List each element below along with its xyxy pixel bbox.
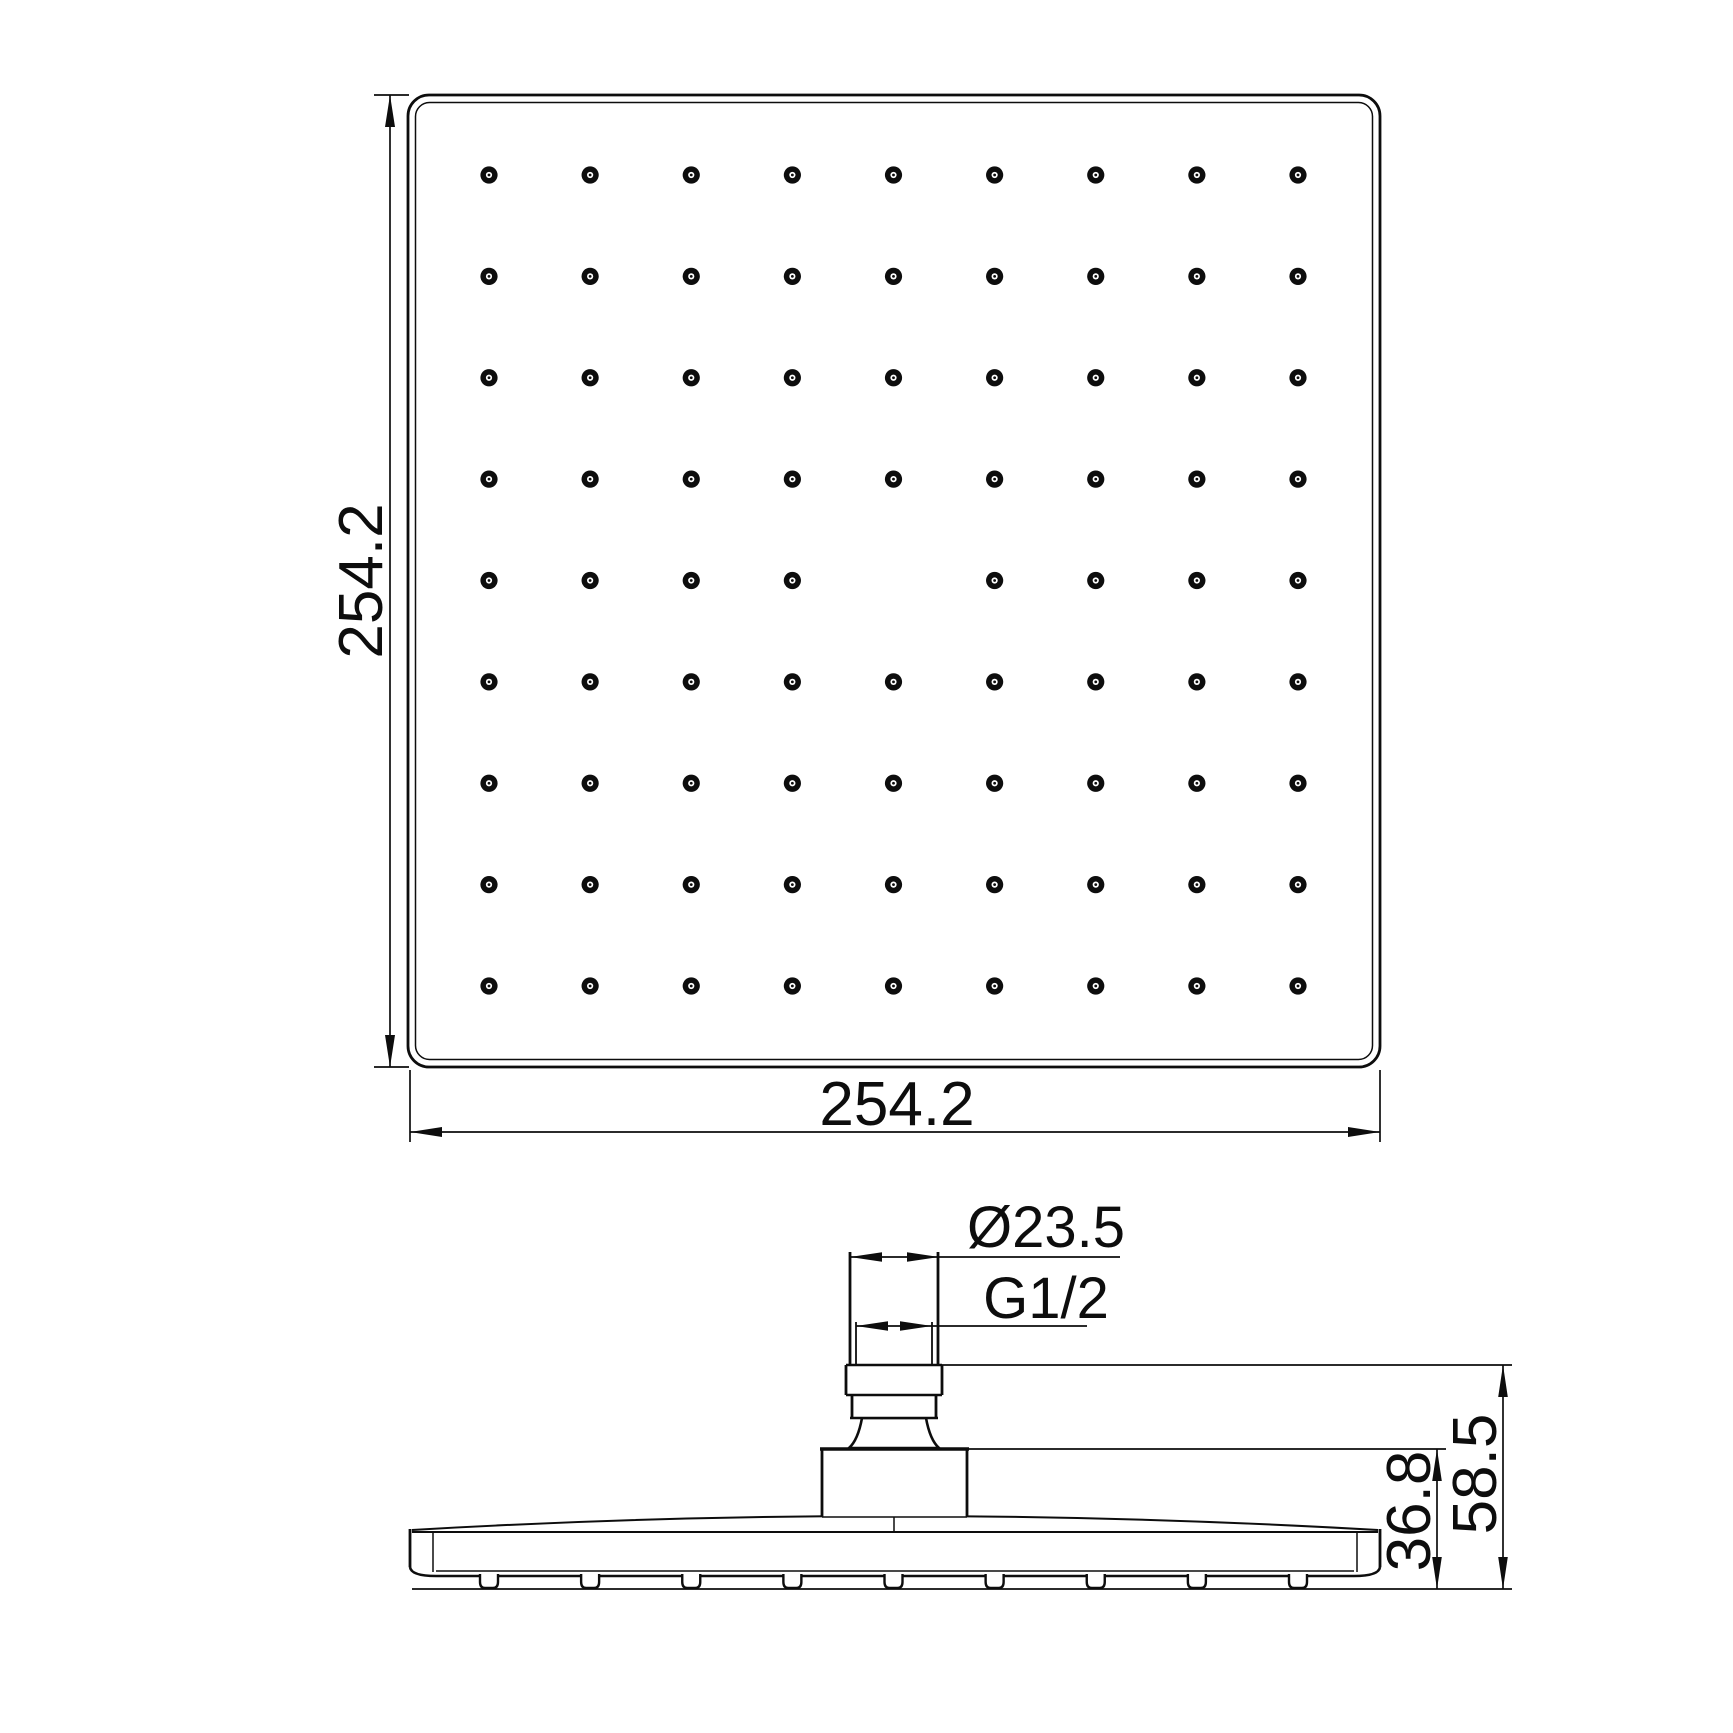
- nozzle: [986, 572, 1003, 589]
- nozzle: [1087, 268, 1104, 285]
- dim-label-connector-diameter: Ø23.5: [967, 1195, 1125, 1260]
- nozzle: [480, 572, 497, 589]
- side-head-body: [410, 1516, 1380, 1576]
- nut-fill: [846, 1365, 942, 1395]
- nozzle: [683, 268, 700, 285]
- nozzle: [885, 673, 902, 690]
- face-nub: [1087, 1574, 1105, 1588]
- nozzle: [1188, 369, 1205, 386]
- nozzle: [784, 876, 801, 893]
- shower-head-drawing: 254.2 254.2: [0, 0, 1733, 1733]
- nozzle: [683, 471, 700, 488]
- nozzle: [784, 166, 801, 183]
- arrowhead-right: [1348, 1127, 1380, 1137]
- nozzle: [986, 876, 1003, 893]
- nozzle: [784, 471, 801, 488]
- face-nub: [581, 1574, 599, 1588]
- nozzle: [480, 775, 497, 792]
- nozzle: [480, 876, 497, 893]
- nozzle: [784, 673, 801, 690]
- nozzle: [885, 876, 902, 893]
- nozzle: [480, 471, 497, 488]
- nozzle: [1188, 268, 1205, 285]
- nozzle: [1188, 166, 1205, 183]
- nozzle: [885, 471, 902, 488]
- nozzle: [885, 268, 902, 285]
- nozzle: [1188, 977, 1205, 994]
- arrowhead-up: [1498, 1365, 1508, 1397]
- face-nub: [1188, 1574, 1206, 1588]
- swivel-cone: [849, 1418, 939, 1448]
- nozzle: [582, 673, 599, 690]
- connector-collar: [850, 1395, 938, 1418]
- nozzle: [986, 977, 1003, 994]
- nozzle: [1087, 166, 1104, 183]
- escutcheon: [820, 1449, 969, 1517]
- connector-nut: [846, 1365, 942, 1395]
- nozzle: [1087, 369, 1104, 386]
- arrowhead-down: [385, 1035, 395, 1067]
- nozzle: [683, 876, 700, 893]
- nozzle: [784, 775, 801, 792]
- nozzle: [582, 775, 599, 792]
- face-nub: [783, 1574, 801, 1588]
- arrowhead-down: [1498, 1557, 1508, 1589]
- arrowhead-left: [410, 1127, 442, 1137]
- nozzle: [885, 166, 902, 183]
- dim-label-width: 254.2: [819, 1070, 974, 1139]
- nozzle: [1188, 876, 1205, 893]
- nozzle: [1087, 572, 1104, 589]
- nozzle: [480, 268, 497, 285]
- nozzle: [1289, 775, 1306, 792]
- nozzle: [582, 369, 599, 386]
- technical-drawing-page: 254.2 254.2: [0, 0, 1733, 1733]
- arrowhead-left: [850, 1252, 882, 1262]
- nozzle: [582, 166, 599, 183]
- nozzle: [480, 166, 497, 183]
- escutcheon-fill: [822, 1449, 967, 1517]
- inlet-pipe: [850, 1252, 938, 1365]
- nozzle: [683, 673, 700, 690]
- nozzle: [784, 572, 801, 589]
- nozzle: [582, 876, 599, 893]
- nozzle: [986, 268, 1003, 285]
- face-nub: [682, 1574, 700, 1588]
- nozzle: [885, 977, 902, 994]
- arrowhead-right: [900, 1321, 932, 1331]
- nozzle: [986, 673, 1003, 690]
- head-top-crown-line: [412, 1516, 1378, 1530]
- nozzle: [1289, 673, 1306, 690]
- top-view: [408, 95, 1380, 1067]
- nozzle: [582, 268, 599, 285]
- nozzle: [784, 268, 801, 285]
- nozzle: [683, 775, 700, 792]
- nozzle: [1289, 471, 1306, 488]
- nozzle: [1289, 369, 1306, 386]
- nozzle: [1188, 673, 1205, 690]
- nozzle: [885, 369, 902, 386]
- face-nub: [1289, 1574, 1307, 1588]
- nozzle: [986, 166, 1003, 183]
- arrowhead-up: [385, 95, 395, 127]
- nozzle: [480, 369, 497, 386]
- arrowhead-left: [856, 1321, 888, 1331]
- nozzle: [683, 369, 700, 386]
- nozzle: [784, 977, 801, 994]
- dim-label-overall-height: 58.5: [1441, 1414, 1510, 1535]
- nozzle: [1087, 876, 1104, 893]
- dim-label-height: 254.2: [327, 503, 396, 658]
- nozzle: [480, 673, 497, 690]
- collar-fill: [852, 1395, 936, 1418]
- nozzle: [1188, 572, 1205, 589]
- nozzle: [683, 572, 700, 589]
- nozzle: [1188, 775, 1205, 792]
- nozzle: [1289, 268, 1306, 285]
- head-left-chamfer: [410, 1567, 436, 1576]
- nozzle: [1289, 977, 1306, 994]
- nozzle: [683, 977, 700, 994]
- nozzle: [480, 977, 497, 994]
- nozzle: [1289, 572, 1306, 589]
- dim-label-head-height: 36.8: [1375, 1451, 1444, 1572]
- face-nub: [885, 1574, 903, 1588]
- nozzle: [986, 775, 1003, 792]
- nozzle: [885, 775, 902, 792]
- nozzle: [1087, 977, 1104, 994]
- nozzle: [1087, 775, 1104, 792]
- head-outline-outer: [408, 95, 1380, 1067]
- arrowhead-right: [907, 1252, 939, 1262]
- face-nub: [480, 1574, 498, 1588]
- nozzle: [1289, 876, 1306, 893]
- face-nub: [986, 1574, 1004, 1588]
- nozzle: [1087, 673, 1104, 690]
- nozzle: [1188, 471, 1205, 488]
- nozzle: [784, 369, 801, 386]
- nozzle: [582, 471, 599, 488]
- nozzle: [1289, 166, 1306, 183]
- nozzle: [1087, 471, 1104, 488]
- nozzle: [986, 369, 1003, 386]
- nozzle: [683, 166, 700, 183]
- side-view: [410, 1252, 1380, 1588]
- nozzle: [582, 572, 599, 589]
- nozzle: [582, 977, 599, 994]
- dim-label-thread: G1/2: [983, 1266, 1109, 1331]
- nozzle: [986, 471, 1003, 488]
